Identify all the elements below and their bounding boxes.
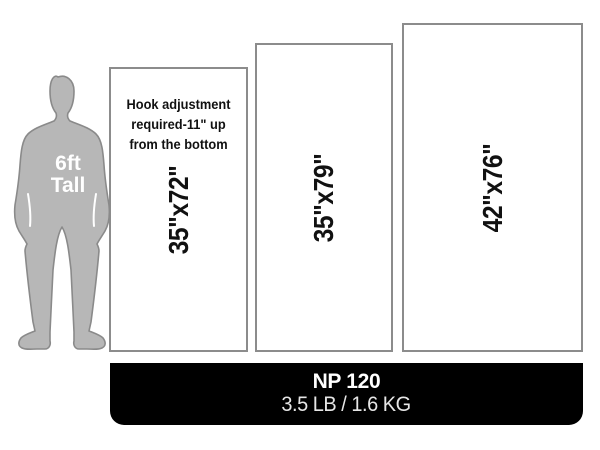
model-name: NP 120 xyxy=(313,370,381,393)
banner-panel-42x76: 42"x76" xyxy=(402,23,583,352)
model-weight: 3.5 LB / 1.6 KG xyxy=(282,393,411,417)
size-comparison-diagram: 6ft Tall Hook adjustment required-11" up… xyxy=(0,0,600,450)
height-label-line1: 6ft xyxy=(55,152,81,175)
dimension-label-35x72: 35"x72" xyxy=(163,165,195,254)
banner-panel-35x72: Hook adjustment required-11" up from the… xyxy=(109,67,248,352)
person-body-shape xyxy=(15,76,110,349)
model-info-bar: NP 120 3.5 LB / 1.6 KG xyxy=(110,363,583,425)
height-label-line2: Tall xyxy=(51,174,86,197)
hook-adjustment-note: Hook adjustment required-11" up from the… xyxy=(114,95,242,155)
banner-panel-35x79: 35"x79" xyxy=(255,43,393,352)
hook-note-line1: Hook adjustment xyxy=(114,95,242,115)
dimension-label-42x76: 42"x76" xyxy=(477,143,509,232)
dimension-label-35x79: 35"x79" xyxy=(308,153,340,242)
hook-note-line3: from the bottom xyxy=(114,135,242,155)
hook-note-line2: required-11" up xyxy=(114,115,242,135)
person-silhouette: 6ft Tall xyxy=(13,74,111,354)
